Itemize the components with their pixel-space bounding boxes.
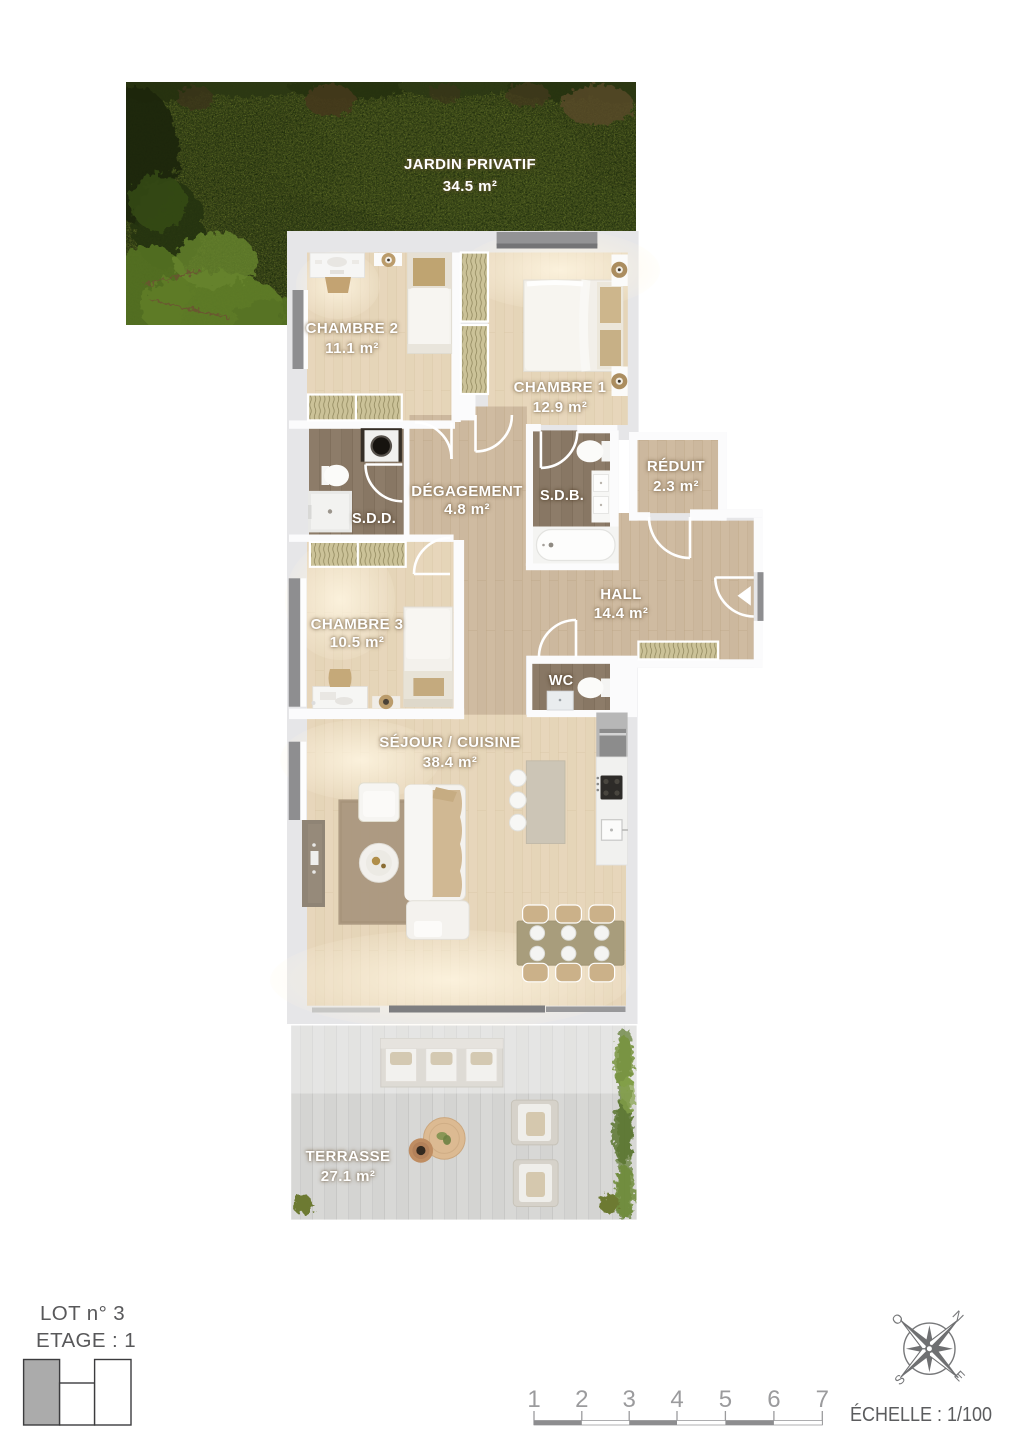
svg-text:4: 4: [670, 1386, 683, 1413]
svg-text:7: 7: [816, 1386, 829, 1413]
svg-text:TERRASSE: TERRASSE: [306, 1148, 391, 1165]
svg-text:10.5 m²: 10.5 m²: [330, 634, 385, 651]
svg-text:ÉCHELLE : 1/100: ÉCHELLE : 1/100: [850, 1403, 992, 1426]
svg-text:JARDIN PRIVATIF: JARDIN PRIVATIF: [404, 156, 536, 173]
svg-text:5: 5: [719, 1386, 732, 1413]
svg-text:DÉGAGEMENT: DÉGAGEMENT: [411, 483, 523, 500]
svg-text:CHAMBRE 2: CHAMBRE 2: [306, 320, 399, 337]
svg-text:LOT n° 3: LOT n° 3: [40, 1302, 125, 1325]
svg-text:6: 6: [767, 1386, 780, 1413]
svg-text:11.1 m²: 11.1 m²: [325, 340, 379, 357]
svg-text:CHAMBRE 1: CHAMBRE 1: [514, 379, 607, 396]
svg-text:S.D.B.: S.D.B.: [540, 488, 584, 504]
svg-text:27.1 m²: 27.1 m²: [321, 1168, 376, 1185]
svg-text:1: 1: [527, 1386, 540, 1413]
svg-text:SÉJOUR / CUISINE: SÉJOUR / CUISINE: [379, 734, 520, 751]
svg-text:CHAMBRE 3: CHAMBRE 3: [311, 616, 404, 633]
svg-text:14.4 m²: 14.4 m²: [594, 605, 649, 622]
svg-text:4.8 m²: 4.8 m²: [444, 501, 490, 518]
svg-text:RÉDUIT: RÉDUIT: [647, 458, 705, 475]
svg-text:38.4 m²: 38.4 m²: [423, 754, 478, 771]
svg-text:34.5 m²: 34.5 m²: [443, 178, 498, 195]
svg-text:HALL: HALL: [600, 586, 642, 603]
svg-text:12.9 m²: 12.9 m²: [533, 399, 588, 416]
svg-text:WC: WC: [549, 673, 574, 689]
svg-text:3: 3: [623, 1386, 636, 1413]
svg-text:ETAGE : 1: ETAGE : 1: [36, 1329, 136, 1352]
svg-text:2.3 m²: 2.3 m²: [653, 478, 699, 495]
svg-text:2: 2: [575, 1386, 588, 1413]
svg-text:S.D.D.: S.D.D.: [352, 511, 396, 527]
